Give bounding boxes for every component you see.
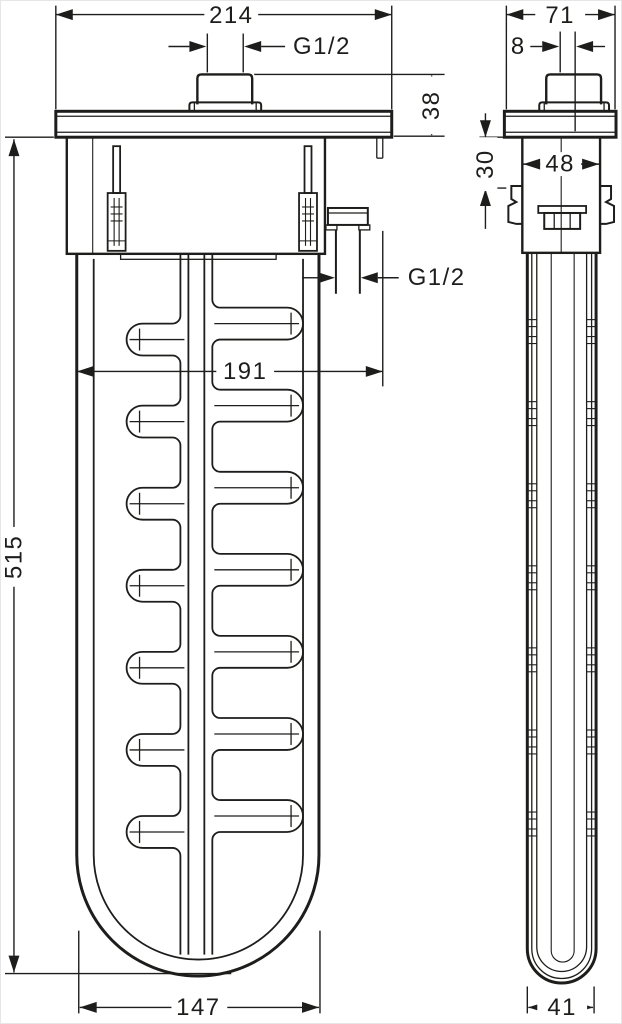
fixing-clip-right xyxy=(299,146,317,251)
dim-label-g12-outlet: G1/2 xyxy=(408,264,466,291)
dim-label-g12-top: G1/2 xyxy=(293,33,351,60)
side-view xyxy=(504,74,616,983)
dim-label-191: 191 xyxy=(223,358,267,385)
dim-label-515: 515 xyxy=(1,535,27,579)
column-side xyxy=(527,253,596,983)
housing-front xyxy=(67,137,325,259)
hook-right xyxy=(600,186,614,224)
dim-label-147: 147 xyxy=(176,994,220,1021)
button-front xyxy=(197,74,252,104)
hook-left xyxy=(508,186,522,224)
dim-side-body-depth: 48 xyxy=(523,151,599,178)
flange-side xyxy=(504,111,616,137)
dim-label-8: 8 xyxy=(511,33,526,60)
dim-label-30: 30 xyxy=(472,149,499,179)
dim-label-214: 214 xyxy=(209,2,253,29)
dim-front-total-height: 515 xyxy=(1,137,231,973)
connector-nut xyxy=(544,213,580,229)
fin-comb-left xyxy=(127,254,181,955)
capsule-outer-wall xyxy=(77,254,319,976)
outlet-port-front xyxy=(326,137,383,293)
dim-label-41: 41 xyxy=(547,994,577,1021)
dim-label-38: 38 xyxy=(418,91,445,121)
dim-front-button-height: 38 xyxy=(254,74,445,136)
drawing-sheet: 214 G1/2 38 G1/2 191 xyxy=(0,0,622,1024)
flange-front xyxy=(56,111,392,137)
dim-label-48: 48 xyxy=(545,151,575,178)
dim-side-body-width: 41 xyxy=(527,986,594,1020)
dim-front-thread-outlet: G1/2 xyxy=(302,264,475,291)
dim-front-thread-top: G1/2 xyxy=(168,33,350,72)
dim-label-71: 71 xyxy=(545,2,575,29)
technical-drawing: 214 G1/2 38 G1/2 191 xyxy=(1,1,621,1023)
dim-side-collar-height: 30 xyxy=(472,113,506,229)
fixing-clip-left xyxy=(108,146,126,251)
button-side xyxy=(546,74,601,104)
front-view xyxy=(56,74,392,976)
